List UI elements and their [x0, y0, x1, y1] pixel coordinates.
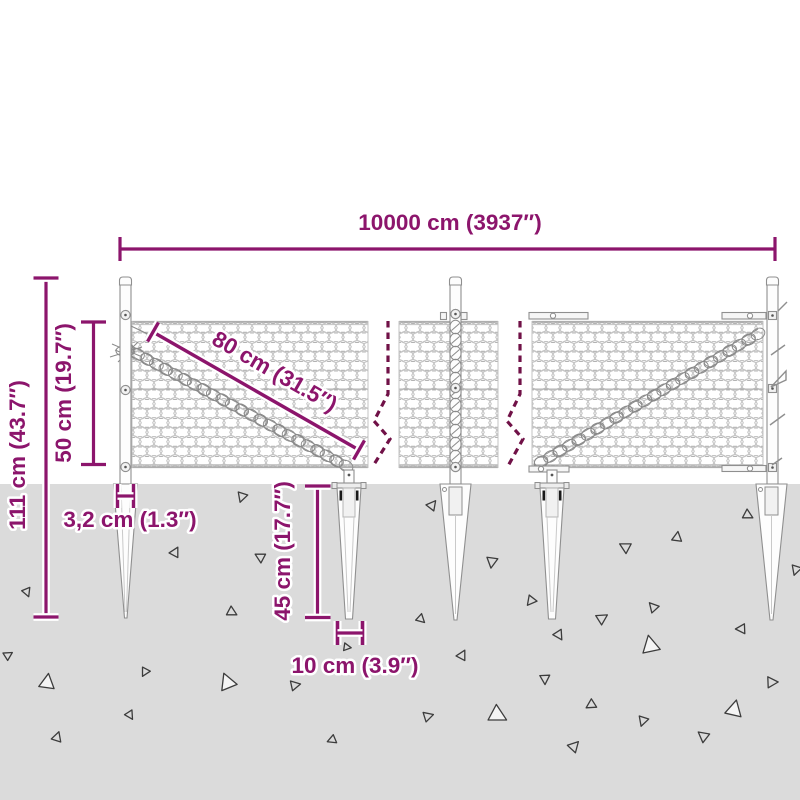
svg-text:3,2 cm (1.3″): 3,2 cm (1.3″): [63, 507, 196, 532]
svg-text:10 cm (3.9″): 10 cm (3.9″): [291, 653, 418, 678]
svg-text:111 cm (43.7″): 111 cm (43.7″): [5, 380, 30, 530]
svg-text:10000 cm (3937″): 10000 cm (3937″): [358, 210, 541, 235]
svg-text:45 cm (17.7″): 45 cm (17.7″): [270, 481, 295, 621]
svg-text:50 cm (19.7″): 50 cm (19.7″): [51, 323, 76, 463]
